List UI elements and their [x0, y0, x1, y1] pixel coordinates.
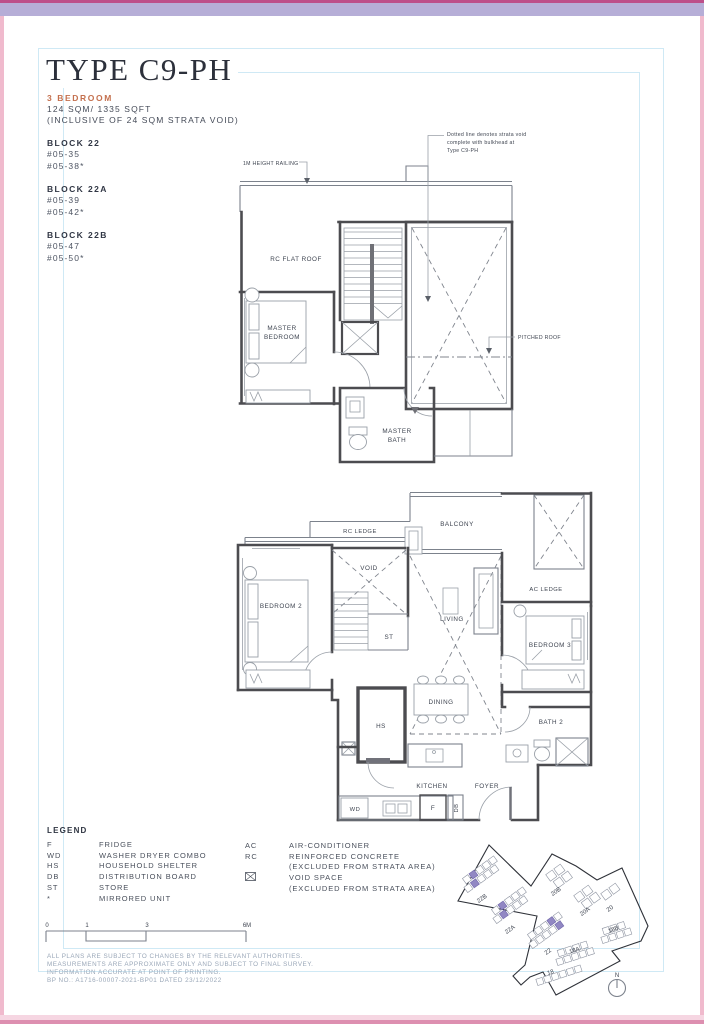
- wd-label: WD: [350, 807, 361, 813]
- legend-abbr: DB: [47, 872, 99, 881]
- scale-tick: 6M: [243, 923, 251, 929]
- legend-abbr: AC: [245, 841, 289, 850]
- legend-abbr: WD: [47, 851, 99, 860]
- scale-tick: 0: [45, 923, 49, 929]
- strata-void-note: Dotted line denotes strata void: [447, 132, 526, 138]
- legend: LEGEND FFRIDGE WDWASHER DRYER COMBO HSHO…: [47, 826, 206, 904]
- legend-label: HOUSEHOLD SHELTER: [99, 861, 198, 870]
- block-group: BLOCK 22A #05-39 #05-42*: [47, 183, 108, 218]
- legend-abbr: RC: [245, 852, 289, 861]
- height-railing-note: 1M HEIGHT RAILING: [243, 161, 298, 167]
- block-unit: #05-39: [47, 195, 108, 207]
- disclaimer: ALL PLANS ARE SUBJECT TO CHANGES BY THE …: [47, 953, 313, 985]
- kitchen-label: KITCHEN: [416, 783, 447, 790]
- legend-label: FRIDGE: [99, 840, 133, 849]
- site-plan: 22B 22A 22 20B 20A 20 18B 18A 18 N: [458, 845, 648, 997]
- master-bath-label: BATH: [388, 437, 406, 444]
- balcony-label: BALCONY: [440, 521, 474, 528]
- site-block-20: 20: [606, 904, 615, 913]
- block-unit: #05-35: [47, 149, 108, 161]
- legend-label: STORE: [99, 883, 129, 892]
- page-title: TYPE C9-PH: [46, 52, 238, 88]
- void-space-icon: [245, 872, 256, 881]
- legend-abbr: ST: [47, 883, 99, 892]
- disclaimer-line: BP NO.: A1716-00007-2021-BP01 DATED 23/1…: [47, 977, 313, 985]
- strata-void-note: complete with bulkhead at: [447, 140, 515, 146]
- site-block-22b: 22B: [476, 894, 488, 905]
- block-list: BLOCK 22 #05-35 #05-38* BLOCK 22A #05-39…: [47, 137, 108, 275]
- legend-column-2: ACAIR-CONDITIONER RCREINFORCED CONCRETE …: [245, 840, 436, 894]
- hs-label: HS: [376, 723, 386, 730]
- foyer-label: FOYER: [475, 783, 499, 790]
- legend-label: AIR-CONDITIONER: [289, 841, 370, 850]
- legend-label: REINFORCED CONCRETE: [289, 852, 400, 861]
- disclaimer-line: ALL PLANS ARE SUBJECT TO CHANGES BY THE …: [47, 953, 313, 961]
- site-block-20b: 20B: [550, 887, 562, 898]
- rc-flat-roof-label: RC FLAT ROOF: [270, 256, 322, 263]
- pitched-roof-note: PITCHED ROOF: [518, 335, 561, 341]
- master-bath-label: MASTER: [382, 428, 411, 435]
- block-unit: #05-50*: [47, 253, 108, 265]
- store-label: ST: [384, 634, 393, 641]
- north-label: N: [615, 973, 619, 979]
- site-block-22a: 22A: [504, 925, 516, 936]
- legend-abbr: F: [47, 840, 99, 849]
- upper-floor-plan: RC FLAT ROOF MASTER BEDROOM MASTER BATH: [240, 166, 512, 462]
- disclaimer-line: MEASUREMENTS ARE APPROXIMATE ONLY AND SU…: [47, 961, 313, 969]
- legend-abbr: *: [47, 894, 99, 903]
- lower-floor-plan: RC LEDGE BALCONY VOID BEDROOM 2 ST LIVIN…: [238, 493, 591, 821]
- block-unit: #05-47: [47, 241, 108, 253]
- legend-note: (EXCLUDED FROM STRATA AREA): [289, 862, 436, 871]
- site-block-22: 22: [544, 947, 553, 956]
- legend-abbr: HS: [47, 861, 99, 870]
- legend-label: MIRRORED UNIT: [99, 894, 171, 903]
- north-indicator: N: [609, 973, 626, 997]
- scale-tick: 3: [145, 923, 149, 929]
- block-unit: #05-42*: [47, 207, 108, 219]
- floorplan-page: TYPE C9-PH 3 BEDROOM 124 SQM/ 1335 SQFT …: [0, 0, 704, 1024]
- dining-label: DINING: [428, 699, 453, 706]
- legend-label: WASHER DRYER COMBO: [99, 851, 206, 860]
- bath2-label: BATH 2: [539, 719, 564, 726]
- unit-area: 124 SQM/ 1335 SQFT: [47, 104, 151, 114]
- fridge-label: F: [431, 805, 435, 812]
- ac-ledge-label: AC LEDGE: [529, 587, 562, 593]
- master-bedroom-label: BEDROOM: [264, 334, 300, 341]
- rc-ledge-label: RC LEDGE: [343, 529, 377, 535]
- block-name: BLOCK 22B: [47, 229, 108, 241]
- legend-label: DISTRIBUTION BOARD: [99, 872, 197, 881]
- bedroom3-label: BEDROOM 3: [529, 642, 571, 649]
- disclaimer-line: INFORMATION ACCURATE AT POINT OF PRINTIN…: [47, 969, 313, 977]
- legend-note: (EXCLUDED FROM STRATA AREA): [289, 884, 436, 893]
- legend-label: VOID SPACE: [289, 873, 343, 882]
- block-name: BLOCK 22: [47, 137, 108, 149]
- block-group: BLOCK 22 #05-35 #05-38*: [47, 137, 108, 172]
- unit-type-label: 3 BEDROOM: [47, 93, 113, 103]
- void-label: VOID: [360, 565, 377, 572]
- bedroom2-label: BEDROOM 2: [260, 603, 302, 610]
- scale-tick: 1: [85, 923, 89, 929]
- strata-void-note: Type C9-PH: [447, 148, 478, 154]
- scale-bar: 0 1 3 6M: [45, 923, 251, 942]
- block-unit: #05-38*: [47, 161, 108, 173]
- db-label: DB: [454, 803, 460, 812]
- master-bedroom-label: MASTER: [267, 325, 296, 332]
- block-name: BLOCK 22A: [47, 183, 108, 195]
- living-label: LIVING: [440, 616, 464, 623]
- block-group: BLOCK 22B #05-47 #05-50*: [47, 229, 108, 264]
- legend-title: LEGEND: [47, 826, 206, 835]
- unit-area-note: (INCLUSIVE OF 24 SQM STRATA VOID): [47, 115, 239, 125]
- site-block-20a: 20A: [579, 907, 591, 918]
